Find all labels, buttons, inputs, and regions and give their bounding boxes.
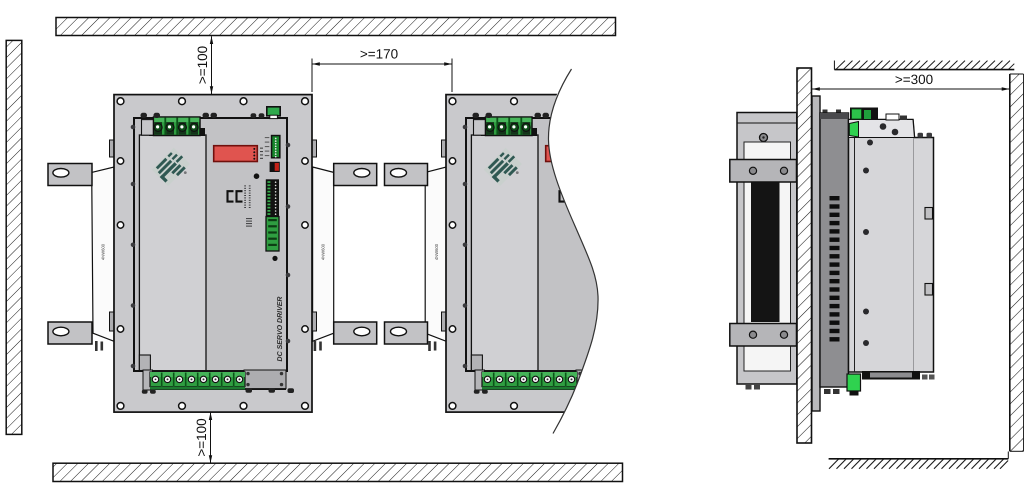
svg-text:4NW600: 4NW600 [101, 243, 106, 260]
svg-text:>=100: >=100 [195, 46, 210, 84]
svg-text:4NW600: 4NW600 [434, 243, 439, 260]
svg-text:>=300: >=300 [895, 72, 933, 87]
svg-text:4NW600: 4NW600 [321, 243, 326, 260]
svg-text:>=170: >=170 [360, 47, 398, 62]
svg-text:>=100: >=100 [194, 418, 209, 456]
